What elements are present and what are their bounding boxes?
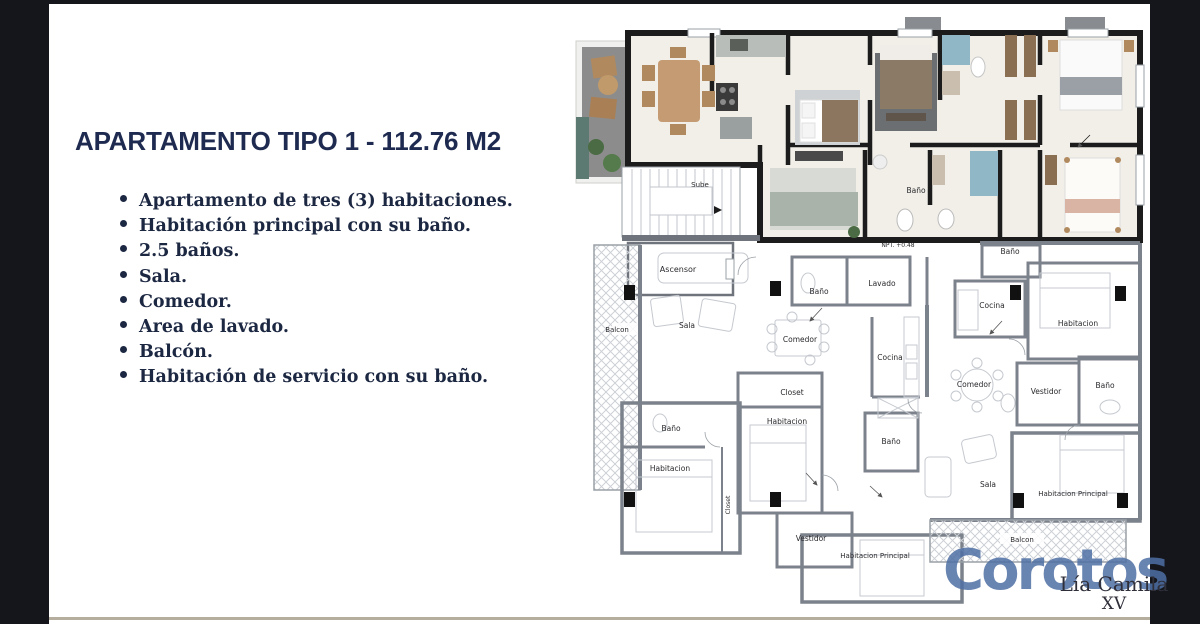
room-label: Habitacion Principal: [1038, 490, 1108, 498]
list-item: Comedor.: [120, 290, 513, 315]
room-label: Balcon: [605, 326, 629, 334]
list-item: Habitación principal con su baño.: [120, 214, 513, 239]
bullet-icon: [120, 245, 127, 252]
list-item: Balcón.: [120, 340, 513, 365]
page-title: APARTAMENTO TIPO 1 - 112.76 M2: [75, 126, 545, 157]
balcony-left: Balcon: [594, 245, 642, 490]
room-label: Baño: [661, 424, 680, 433]
elevator: Ascensor: [628, 243, 734, 295]
room-label: Habitacion: [1058, 319, 1098, 328]
bullet-icon: [120, 321, 127, 328]
room-label: Sala: [679, 321, 695, 330]
room-label: Habitacion: [767, 417, 807, 426]
bullet-icon: [120, 371, 127, 378]
room-label: Habitacion: [650, 464, 690, 473]
room-label: Baño: [809, 287, 828, 296]
bullet-icon: [120, 296, 127, 303]
render-balcony: [576, 41, 632, 183]
bottom-divider: [49, 617, 1150, 620]
room-label: Comedor: [783, 335, 818, 344]
elevator-label: Ascensor: [660, 265, 697, 274]
list-item: Apartamento de tres (3) habitaciones.: [120, 189, 513, 214]
room-label: Cocina: [979, 301, 1004, 310]
room-label: Vestidor: [1031, 387, 1062, 396]
room-label: Vestidor: [796, 534, 827, 543]
level-label: NPT. +0.48: [881, 242, 914, 249]
list-item: 2.5 baños.: [120, 239, 513, 264]
stairs: Sube: [622, 167, 760, 241]
vendor-suffix: XV: [1058, 595, 1170, 614]
room-label: Baño: [906, 186, 925, 195]
list-item: Sala.: [120, 265, 513, 290]
bullet-icon: [120, 220, 127, 227]
bullet-icon: [120, 346, 127, 353]
room-label: Baño: [881, 437, 900, 446]
room-label: Lavado: [868, 279, 896, 288]
room-label: Baño: [1000, 247, 1019, 256]
bullet-icon: [120, 195, 127, 202]
list-item: Area de lavado.: [120, 315, 513, 340]
room-label: Sala: [980, 480, 996, 489]
room-label: Comedor: [957, 380, 992, 389]
stairs-label: Sube: [691, 181, 709, 189]
vendor-name: Lía Camila: [1058, 574, 1170, 595]
room-label: Closet: [780, 388, 803, 397]
room-label: Habitacion Principal: [840, 552, 910, 560]
room-label: Baño: [1095, 381, 1114, 390]
floor-plan: Baño NPT. +0.48 Sube Ascensor: [570, 5, 1150, 615]
room-label: Closet: [725, 495, 732, 514]
list-item: Habitación de servicio con su baño.: [120, 365, 513, 390]
bullet-icon: [120, 271, 127, 278]
vendor-signature: Lía Camila XV: [1058, 574, 1170, 614]
room-label: Cocina: [877, 353, 902, 362]
feature-list: Apartamento de tres (3) habitaciones. Ha…: [120, 189, 513, 391]
